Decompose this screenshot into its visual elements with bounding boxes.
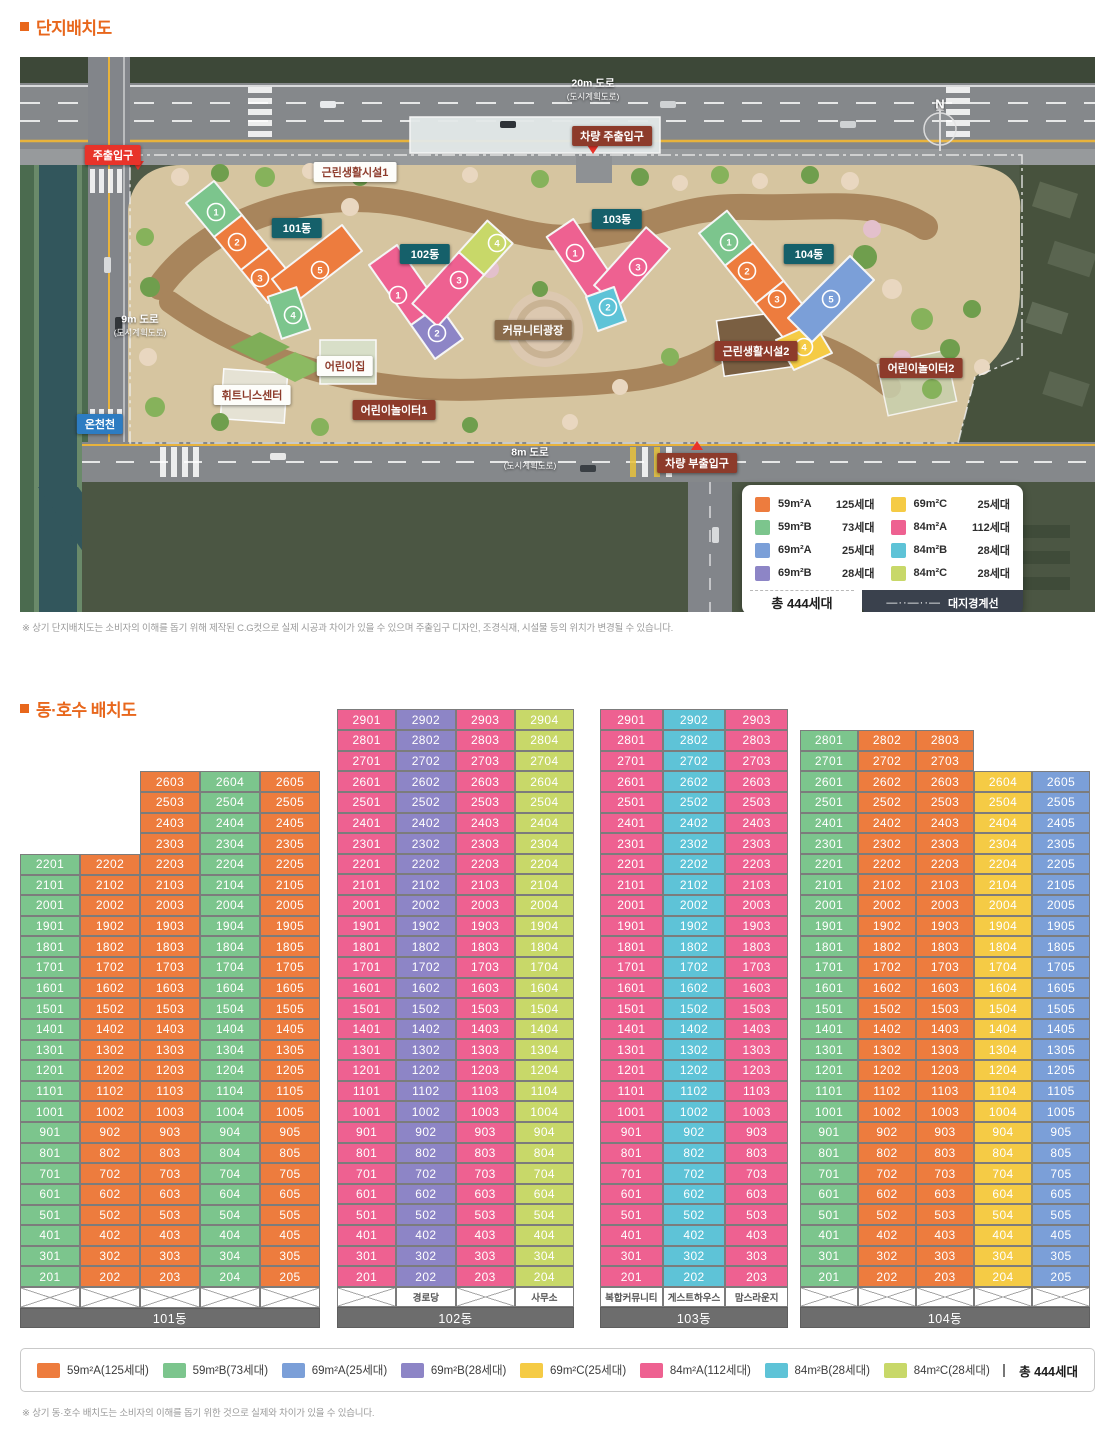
unit-cell: 204 [515, 1266, 574, 1287]
unit-cell: 901 [20, 1122, 80, 1143]
unit-cell: 2401 [800, 813, 858, 834]
strip-legend-item-84B: 84m²B(28세대) [765, 1362, 870, 1378]
legend-chip [755, 520, 770, 535]
unit-cell: 603 [456, 1184, 515, 1205]
unit-cell: 1804 [200, 936, 260, 957]
unit-cell: 1002 [396, 1101, 455, 1122]
unit-cell: 1501 [20, 998, 80, 1019]
unit-cell: 301 [337, 1246, 396, 1267]
grid-columns: 2901280127012601250124012301220121012001… [337, 709, 574, 1307]
label-vehicle-main-gate: 차량 주출입구 [572, 126, 652, 146]
legend-chip [765, 1363, 788, 1378]
unit-cell: 402 [663, 1225, 726, 1246]
unit-cell: 2703 [916, 751, 974, 772]
unit-cell: 2603 [916, 771, 974, 792]
unit-cell: 1303 [725, 1039, 788, 1060]
unit-cell: 1902 [663, 916, 726, 937]
unit-cell: 1602 [663, 978, 726, 999]
unit-cell: 1504 [200, 998, 260, 1019]
strip-legend-item-84C: 84m²C(28세대) [884, 1362, 990, 1378]
unit-cell: 603 [140, 1184, 200, 1205]
building-name-bar: 102동 [337, 1307, 574, 1328]
unit-cell: 401 [337, 1225, 396, 1246]
unit-cell: 601 [800, 1184, 858, 1205]
unit-cell: 601 [600, 1184, 663, 1205]
stack-column-1: 2201210120011901180117011601150114011301… [20, 854, 80, 1308]
unit-cell: 1705 [260, 957, 320, 978]
footnote-siteplan: ※ 상기 단지배치도는 소비자의 이해를 돕기 위해 제작된 C.G컷으로 실제… [22, 620, 673, 634]
legend-chip [891, 497, 906, 512]
unit-circle-number: 4 [801, 342, 807, 353]
unit-cell: 1402 [396, 1019, 455, 1040]
unit-cell: 2303 [916, 833, 974, 854]
unit-cell: 903 [725, 1122, 788, 1143]
building-name-bar: 101동 [20, 1308, 320, 1329]
strip-legend-label: 84m²B(28세대) [795, 1362, 870, 1378]
unit-cell: 1301 [800, 1039, 858, 1060]
unit-cell: 303 [725, 1246, 788, 1267]
unit-cell: 502 [396, 1204, 455, 1225]
unit-cell: 2103 [725, 874, 788, 895]
unit-cell: 502 [858, 1204, 916, 1225]
unit-cell: 1101 [600, 1081, 663, 1102]
unit-cell: 2503 [916, 792, 974, 813]
unit-cell: 2004 [515, 895, 574, 916]
unit-cell: 2201 [600, 854, 663, 875]
unit-cell: 1601 [800, 978, 858, 999]
site-plan-legend: 59m²A125세대59m²B73세대69m²A25세대69m²B28세대69m… [742, 485, 1023, 612]
unit-cell: 1704 [200, 957, 260, 978]
unit-cell: 1701 [800, 957, 858, 978]
unit-cell: 204 [200, 1266, 260, 1287]
unit-cell: 1803 [916, 936, 974, 957]
unit-cell: 1402 [663, 1019, 726, 1040]
unit-cell: 805 [1032, 1143, 1090, 1164]
unit-cell: 1203 [456, 1060, 515, 1081]
label-building-104: 104동 [784, 244, 834, 264]
legend-type-label: 59m²A [778, 498, 812, 510]
unit-cell: 2001 [800, 895, 858, 916]
unit-cell: 2005 [260, 895, 320, 916]
unit-cell: 2102 [80, 875, 140, 896]
unit-cell: 605 [1032, 1184, 1090, 1205]
unit-cell: 1304 [515, 1039, 574, 1060]
legend-chip [891, 543, 906, 558]
unit-cell: 2504 [515, 792, 574, 813]
unit-cell: 504 [974, 1204, 1032, 1225]
unit-cell: 1805 [1032, 936, 1090, 957]
unit-cell: 405 [260, 1225, 320, 1246]
unit-cell: 2403 [140, 813, 200, 834]
unit-cell: 1503 [456, 998, 515, 1019]
unit-cell: 2104 [200, 875, 260, 896]
vehicle-sub-gate-marker-icon [691, 441, 703, 450]
unit-cell: 1003 [916, 1101, 974, 1122]
unit-cell: 1504 [515, 998, 574, 1019]
road-9m-name: 9m 도로 [121, 314, 158, 326]
unit-cell: 904 [200, 1122, 260, 1143]
section2-title-text: 동·호수 배치도 [36, 696, 136, 721]
unit-cell: 2003 [725, 895, 788, 916]
unit-cell: 703 [140, 1163, 200, 1184]
unit-cell: 204 [974, 1266, 1032, 1287]
unit-cell: 602 [396, 1184, 455, 1205]
unit-cell: 902 [80, 1122, 140, 1143]
strip-legend-item-69C: 69m²C(25세대) [520, 1362, 626, 1378]
unit-cell: 1702 [858, 957, 916, 978]
label-playground1: 어린이놀이터1 [353, 400, 436, 420]
label-vehicle-sub-gate: 차량 부출입구 [657, 453, 737, 473]
unit-cell: 2002 [80, 895, 140, 916]
unit-cell: 1104 [974, 1081, 1032, 1102]
unit-circle-number: 2 [605, 302, 610, 313]
unit-cell: 701 [800, 1163, 858, 1184]
unit-cell: 502 [663, 1204, 726, 1225]
legend-item-69A: 69m²A25세대 [755, 542, 875, 558]
unit-cell: 1605 [260, 978, 320, 999]
unit-cell: 1801 [600, 936, 663, 957]
unit-cell: 1903 [140, 916, 200, 937]
site-plan-legend-box: 59m²A125세대59m²B73세대69m²A25세대69m²B28세대69m… [742, 485, 1023, 590]
unit-cell: 501 [337, 1204, 396, 1225]
unit-cell: 703 [916, 1163, 974, 1184]
unit-cell: 702 [663, 1163, 726, 1184]
unit-cell: 1602 [396, 978, 455, 999]
unit-cell: 301 [800, 1246, 858, 1267]
unit-cell: 305 [260, 1246, 320, 1267]
unit-cell: 2205 [1032, 854, 1090, 875]
stack-column-4: 2904280427042604250424042304220421042004… [515, 709, 574, 1307]
total-households: 총 444세대 [742, 590, 862, 612]
unit-cell: 2102 [396, 874, 455, 895]
stack-column-1: 2901280127012601250124012301220121012001… [337, 709, 396, 1307]
unit-cell: 2104 [974, 874, 1032, 895]
unit-cell: 1204 [974, 1060, 1032, 1081]
unit-cell: 1603 [725, 978, 788, 999]
legend-count: 25세대 [978, 496, 1010, 512]
unit-cell: 503 [140, 1205, 200, 1226]
unit-cell: 1702 [80, 957, 140, 978]
unit-circle-number: 4 [290, 310, 296, 321]
unit-cell: 1801 [800, 936, 858, 957]
unit-cell: 603 [725, 1184, 788, 1205]
unit-cell: 1403 [725, 1019, 788, 1040]
unit-cell: 1402 [80, 1019, 140, 1040]
legend-type-label: 69m²B [778, 567, 812, 579]
unit-cell: 1302 [80, 1040, 140, 1061]
unit-cell: 2404 [200, 813, 260, 834]
unit-cell: 802 [396, 1143, 455, 1164]
brochure-page: 단지배치도 [0, 0, 1114, 1430]
unit-circle-number: 2 [434, 328, 439, 339]
unit-cell: 2702 [663, 751, 726, 772]
unit-cell: 1401 [800, 1019, 858, 1040]
stack-column-2: 2902280227022602250224022302220221022002… [396, 709, 455, 1307]
unit-cell: 1203 [140, 1060, 200, 1081]
unit-cell: 2104 [515, 874, 574, 895]
unit-cell: 302 [663, 1246, 726, 1267]
unit-cell: 1302 [858, 1039, 916, 1060]
unit-cell: 1105 [1032, 1081, 1090, 1102]
unit-cell: 1703 [916, 957, 974, 978]
unit-cell: 1701 [600, 957, 663, 978]
unit-cell: 2505 [1032, 792, 1090, 813]
unit-cell: 2901 [600, 709, 663, 730]
ground-crossed-cell [140, 1287, 200, 1308]
unit-cell: 903 [140, 1122, 200, 1143]
unit-cell: 1602 [858, 978, 916, 999]
unit-cell: 701 [337, 1163, 396, 1184]
unit-cell: 201 [337, 1266, 396, 1287]
unit-cell: 201 [600, 1266, 663, 1287]
unit-cell: 2302 [858, 833, 916, 854]
unit-cell: 2503 [456, 792, 515, 813]
unit-cell: 202 [80, 1266, 140, 1287]
unit-cell: 1803 [725, 936, 788, 957]
label-community-plaza: 커뮤니티광장 [495, 320, 572, 340]
unit-cell: 2302 [396, 833, 455, 854]
unit-cell: 2103 [456, 874, 515, 895]
unit-cell: 2602 [858, 771, 916, 792]
unit-cell: 501 [800, 1204, 858, 1225]
legend-chip [755, 497, 770, 512]
unit-cell: 1304 [200, 1040, 260, 1061]
ground-crossed-cell [200, 1287, 260, 1308]
unit-cell: 302 [80, 1246, 140, 1267]
stack-column-3: 2803270326032503240323032203210320031903… [916, 730, 974, 1307]
label-road-9m: 9m 도로 (도시계획도로) [114, 314, 167, 339]
stack-column-3: 2603250324032303220321032003190318031703… [140, 771, 200, 1307]
unit-cell: 405 [1032, 1225, 1090, 1246]
unit-cell: 2201 [800, 854, 858, 875]
unit-cell: 1604 [200, 978, 260, 999]
unit-cell: 2001 [600, 895, 663, 916]
unit-cell: 2602 [663, 771, 726, 792]
unit-cell: 1901 [800, 916, 858, 937]
unit-cell: 2802 [396, 730, 455, 751]
unit-cell: 1703 [140, 957, 200, 978]
road-9m-sub: (도시계획도로) [114, 327, 167, 338]
unit-cell: 2704 [515, 751, 574, 772]
ground-crossed-cell [1032, 1287, 1090, 1308]
legend-count: 73세대 [842, 519, 874, 535]
grid-building-103동: 2901280127012601250124012301220121012001… [600, 709, 788, 1328]
unit-cell: 803 [916, 1143, 974, 1164]
unit-cell: 704 [974, 1163, 1032, 1184]
unit-cell: 2603 [725, 771, 788, 792]
unit-cell: 2004 [200, 895, 260, 916]
unit-cell: 1305 [1032, 1039, 1090, 1060]
unit-cell: 2703 [725, 751, 788, 772]
unit-cell: 1301 [600, 1039, 663, 1060]
unit-cell: 2701 [337, 751, 396, 772]
unit-cell: 1605 [1032, 978, 1090, 999]
strip-legend-label: 59m²A(125세대) [67, 1362, 149, 1378]
ground-facility-cell: 경로당 [396, 1287, 455, 1308]
unit-cell: 901 [600, 1122, 663, 1143]
unit-cell: 2504 [200, 792, 260, 813]
unit-cell: 704 [200, 1163, 260, 1184]
unit-cell: 1203 [725, 1060, 788, 1081]
legend-type-label: 84m²A [914, 521, 948, 533]
unit-cell: 302 [858, 1246, 916, 1267]
unit-cell: 1901 [337, 916, 396, 937]
unit-cell: 1104 [515, 1081, 574, 1102]
unit-cell: 604 [515, 1184, 574, 1205]
unit-cell: 1301 [20, 1040, 80, 1061]
strip-legend-item-59B: 59m²B(73세대) [163, 1362, 268, 1378]
legend-item-59B: 59m²B73세대 [755, 519, 875, 535]
unit-cell: 1005 [1032, 1101, 1090, 1122]
unit-circle-number: 2 [234, 237, 239, 248]
unit-cell: 2203 [456, 854, 515, 875]
unit-cell: 2204 [515, 854, 574, 875]
unit-cell: 1902 [396, 916, 455, 937]
legend-type-label: 69m²A [778, 544, 812, 556]
unit-cell: 404 [974, 1225, 1032, 1246]
legend-item-59A: 59m²A125세대 [755, 496, 875, 512]
unit-cell: 2504 [974, 792, 1032, 813]
unit-cell: 901 [800, 1122, 858, 1143]
unit-cell: 2403 [725, 813, 788, 834]
unit-cell: 2605 [1032, 771, 1090, 792]
unit-cell: 1505 [1032, 998, 1090, 1019]
unit-cell: 2203 [725, 854, 788, 875]
unit-cell: 1002 [663, 1101, 726, 1122]
unit-cell: 402 [396, 1225, 455, 1246]
unit-cell: 1303 [140, 1040, 200, 1061]
unit-cell: 903 [456, 1122, 515, 1143]
unit-cell: 1902 [858, 916, 916, 937]
ground-crossed-cell [260, 1287, 320, 1308]
unit-cell: 1002 [858, 1101, 916, 1122]
section1-title-text: 단지배치도 [36, 14, 112, 39]
unit-cell: 2801 [800, 730, 858, 751]
unit-cell: 203 [456, 1266, 515, 1287]
unit-cell: 202 [858, 1266, 916, 1287]
unit-cell: 1503 [140, 998, 200, 1019]
unit-cell: 1405 [1032, 1019, 1090, 1040]
road-20m-name: 20m 도로 [571, 78, 614, 90]
unit-cell: 1303 [916, 1039, 974, 1060]
unit-cell: 2402 [396, 813, 455, 834]
unit-cell: 601 [337, 1184, 396, 1205]
unit-circle-number: 3 [257, 273, 262, 284]
legend-chip [891, 520, 906, 535]
unit-cell: 1601 [600, 978, 663, 999]
unit-cell: 404 [515, 1225, 574, 1246]
strip-total-households: 총 444세대 [1019, 1361, 1078, 1380]
unit-cell: 303 [456, 1246, 515, 1267]
unit-cell: 203 [916, 1266, 974, 1287]
unit-cell: 2301 [800, 833, 858, 854]
unit-cell: 1401 [337, 1019, 396, 1040]
unit-cell: 801 [600, 1143, 663, 1164]
unit-cell: 1202 [858, 1060, 916, 1081]
unit-cell: 1501 [800, 998, 858, 1019]
unit-cell: 1604 [974, 978, 1032, 999]
unit-cell: 1905 [260, 916, 320, 937]
unit-cell: 1904 [515, 916, 574, 937]
unit-cell: 1802 [663, 936, 726, 957]
unit-cell: 2202 [396, 854, 455, 875]
unit-cell: 2804 [515, 730, 574, 751]
unit-cell: 2803 [456, 730, 515, 751]
unit-cell: 1805 [260, 936, 320, 957]
unit-cell: 1601 [337, 978, 396, 999]
unit-cell: 2004 [974, 895, 1032, 916]
unit-cell: 1403 [140, 1019, 200, 1040]
strip-legend-label: 84m²C(28세대) [914, 1362, 990, 1378]
unit-cell: 1702 [396, 957, 455, 978]
unit-cell: 1003 [456, 1101, 515, 1122]
strip-legend-label: 69m²A(25세대) [312, 1362, 387, 1378]
unit-cell: 2505 [260, 792, 320, 813]
unit-cell: 1901 [600, 916, 663, 937]
boundary-dash-sample: —··—··— [886, 597, 941, 609]
unit-cell: 803 [140, 1143, 200, 1164]
unit-cell: 1802 [396, 936, 455, 957]
strip-legend-label: 59m²B(73세대) [193, 1362, 268, 1378]
stack-column-1: 2801270126012501240123012201210120011901… [800, 730, 858, 1307]
unit-cell: 1905 [1032, 916, 1090, 937]
unit-cell: 2105 [1032, 874, 1090, 895]
unit-cell: 803 [456, 1143, 515, 1164]
unit-cell: 2402 [858, 813, 916, 834]
unit-circle-number: 2 [744, 266, 749, 277]
stack-column-3: 2903280327032603250324032303220321032003… [456, 709, 515, 1307]
unit-circle-number: 3 [635, 262, 640, 273]
unit-cell: 401 [600, 1225, 663, 1246]
unit-cell: 2701 [600, 751, 663, 772]
stack-column-2: 2202210220021902180217021602150214021302… [80, 854, 140, 1308]
unit-cell: 1102 [663, 1081, 726, 1102]
legend-item-84C: 84m²C28세대 [891, 565, 1011, 581]
unit-cell: 1802 [80, 936, 140, 957]
unit-cell: 902 [663, 1122, 726, 1143]
unit-cell: 1201 [337, 1060, 396, 1081]
grid-columns: 2801270126012501240123012201210120011901… [800, 730, 1090, 1308]
unit-cell: 1404 [200, 1019, 260, 1040]
stack-column-1: 2901280127012601250124012301220121012001… [600, 709, 663, 1307]
stack-column-5: 2605250524052305220521052005190518051705… [260, 771, 320, 1307]
legend-chip [37, 1363, 60, 1378]
label-building-101: 101동 [272, 218, 322, 238]
legend-count: 28세대 [978, 542, 1010, 558]
unit-cell: 504 [200, 1205, 260, 1226]
unit-cell: 1502 [80, 998, 140, 1019]
unit-cell: 201 [800, 1266, 858, 1287]
unit-cell: 2603 [140, 771, 200, 792]
ground-facility-cell: 맘스라운지 [725, 1287, 788, 1308]
legend-chip [891, 566, 906, 581]
unit-cell: 304 [974, 1246, 1032, 1267]
unit-cell: 801 [337, 1143, 396, 1164]
unit-cell: 1703 [725, 957, 788, 978]
unit-cell: 2002 [396, 895, 455, 916]
unit-cell: 601 [20, 1184, 80, 1205]
unit-cell: 1502 [396, 998, 455, 1019]
site-plan-legend-rows: 59m²A125세대59m²B73세대69m²A25세대69m²B28세대69m… [755, 496, 1010, 581]
strip-legend-label: 69m²C(25세대) [550, 1362, 626, 1378]
legend-chip [755, 566, 770, 581]
unit-cell: 2101 [20, 875, 80, 896]
unit-cell: 2502 [858, 792, 916, 813]
label-playground2: 어린이놀이터2 [880, 358, 963, 378]
unit-cell: 2305 [1032, 833, 1090, 854]
unit-cell: 2305 [260, 833, 320, 854]
unit-cell: 1205 [1032, 1060, 1090, 1081]
